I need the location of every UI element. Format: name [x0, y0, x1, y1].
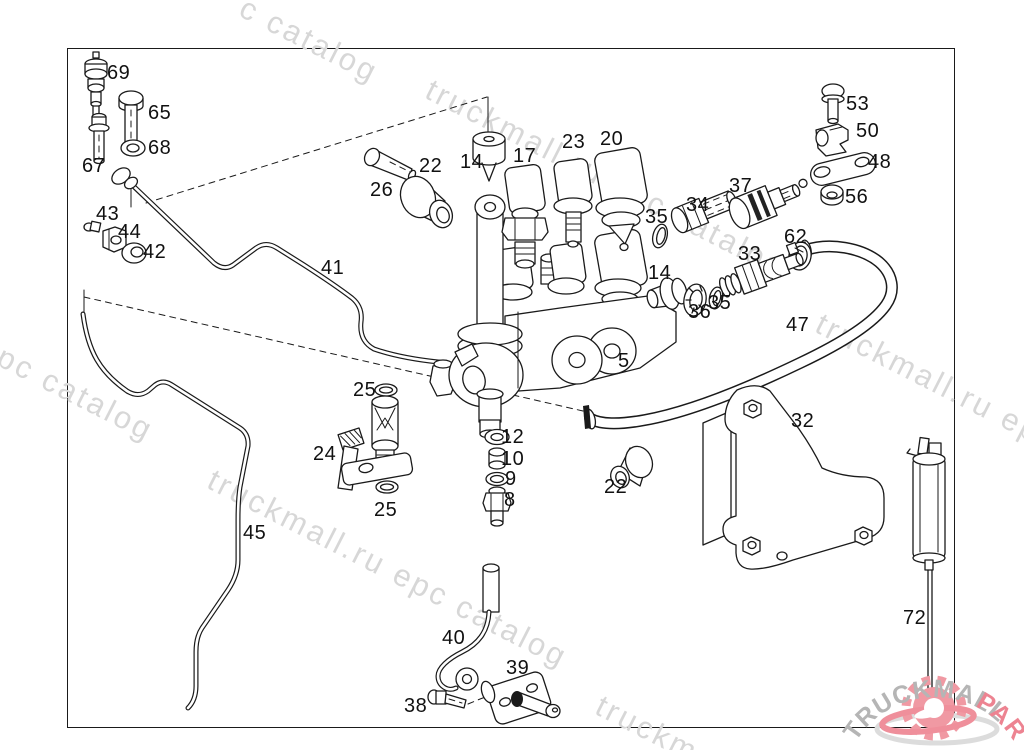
- part-label-41: 41: [321, 257, 344, 280]
- part-label-32: 32: [791, 410, 814, 433]
- part-label-35-upper: 35: [645, 206, 668, 229]
- part-label-39: 39: [506, 657, 529, 680]
- part-53-bolt: [822, 84, 844, 124]
- part-label-69: 69: [107, 62, 130, 85]
- part-label-42: 42: [143, 241, 166, 264]
- part-label-72: 72: [903, 607, 926, 630]
- part-24-filter-bracket: [338, 396, 413, 490]
- part-label-20: 20: [600, 128, 623, 151]
- part-label-47: 47: [786, 314, 809, 337]
- part-label-44: 44: [118, 221, 141, 244]
- actuator-72: [907, 438, 945, 712]
- part-label-37: 37: [729, 175, 752, 198]
- part-label-24: 24: [313, 443, 336, 466]
- part-25-oring-lower: [376, 481, 398, 493]
- part-label-14-plug: 14: [648, 262, 671, 285]
- part-label-45: 45: [243, 522, 266, 545]
- part-label-62: 62: [784, 226, 807, 249]
- part-label-67: 67: [82, 155, 105, 178]
- part-label-48: 48: [868, 151, 891, 174]
- part-label-68: 68: [148, 137, 171, 160]
- part-22-bushing-top: [395, 171, 456, 230]
- part-label-22-mid: 22: [604, 476, 627, 499]
- valve-block-5: [449, 195, 676, 438]
- part-label-22-top: 22: [419, 155, 442, 178]
- part-23-sensor: [553, 158, 593, 247]
- part-label-40: 40: [442, 627, 465, 650]
- part-label-43: 43: [96, 203, 119, 226]
- part-label-26: 26: [370, 179, 393, 202]
- part-label-14-top: 14: [460, 151, 483, 174]
- part-label-25-lower: 25: [374, 499, 397, 522]
- part-label-53: 53: [846, 93, 869, 116]
- part-label-25-upper: 25: [353, 379, 376, 402]
- part-26-bolt: [362, 146, 417, 181]
- part-label-38: 38: [404, 695, 427, 718]
- parts-diagram-page: c catalog truckmall.ru epc catalog l epc…: [0, 0, 1024, 750]
- part-label-35-lower: 35: [708, 292, 731, 315]
- part-label-56: 56: [845, 186, 868, 209]
- part-68-washer: [121, 140, 145, 156]
- part-label-9: 9: [505, 468, 517, 491]
- part-label-17: 17: [513, 145, 536, 168]
- part-label-33: 33: [738, 243, 761, 266]
- part-38-bolt: [428, 690, 466, 708]
- part-69-sensor: [85, 52, 107, 116]
- part-label-50: 50: [856, 120, 879, 143]
- part-label-23: 23: [562, 131, 585, 154]
- part-label-5: 5: [618, 350, 630, 373]
- part-56-grommet: [821, 185, 843, 205]
- part-label-34: 34: [686, 194, 709, 217]
- pipe-45: [83, 314, 248, 708]
- part-label-65: 65: [148, 102, 171, 125]
- part-label-12: 12: [501, 426, 524, 449]
- part-label-8: 8: [504, 489, 516, 512]
- part-25-oring-upper: [375, 384, 397, 396]
- part-50-clamp: [816, 124, 848, 156]
